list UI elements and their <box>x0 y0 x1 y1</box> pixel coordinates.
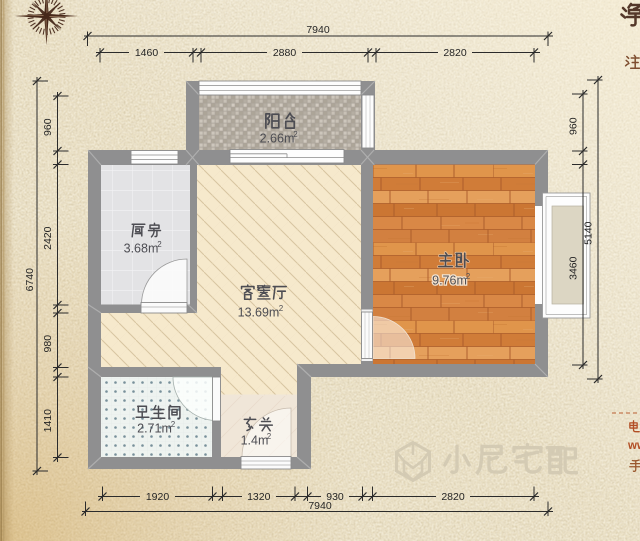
svg-text:2420: 2420 <box>42 226 54 250</box>
svg-text:3460: 3460 <box>568 256 580 280</box>
svg-text:2: 2 <box>279 304 284 313</box>
svg-text:960: 960 <box>42 118 54 136</box>
svg-text:2: 2 <box>293 130 298 139</box>
svg-text:ww: ww <box>627 440 640 452</box>
svg-text:7940: 7940 <box>306 24 330 36</box>
svg-text:1320: 1320 <box>247 491 271 503</box>
svg-text:7940: 7940 <box>308 500 332 512</box>
svg-text:2880: 2880 <box>273 47 297 59</box>
svg-text:980: 980 <box>42 335 54 353</box>
svg-text:9.76m: 9.76m <box>432 274 467 288</box>
svg-text:1920: 1920 <box>146 491 170 503</box>
svg-text:2: 2 <box>267 432 272 441</box>
svg-text:1.4m: 1.4m <box>241 434 269 448</box>
svg-text:2: 2 <box>157 240 162 249</box>
svg-text:13.69m: 13.69m <box>238 306 280 320</box>
svg-text:3.68m: 3.68m <box>124 242 159 256</box>
svg-text:2: 2 <box>171 420 176 429</box>
svg-text:2820: 2820 <box>441 491 465 503</box>
svg-text:2.66m: 2.66m <box>260 132 295 146</box>
svg-text:6740: 6740 <box>24 268 36 292</box>
svg-text:2: 2 <box>466 272 471 281</box>
svg-text:2.71m: 2.71m <box>137 422 172 436</box>
svg-text:1460: 1460 <box>135 47 159 59</box>
svg-text:2820: 2820 <box>443 47 467 59</box>
svg-text:5140: 5140 <box>583 221 595 245</box>
svg-text:960: 960 <box>568 117 580 135</box>
svg-text:1410: 1410 <box>42 409 54 433</box>
